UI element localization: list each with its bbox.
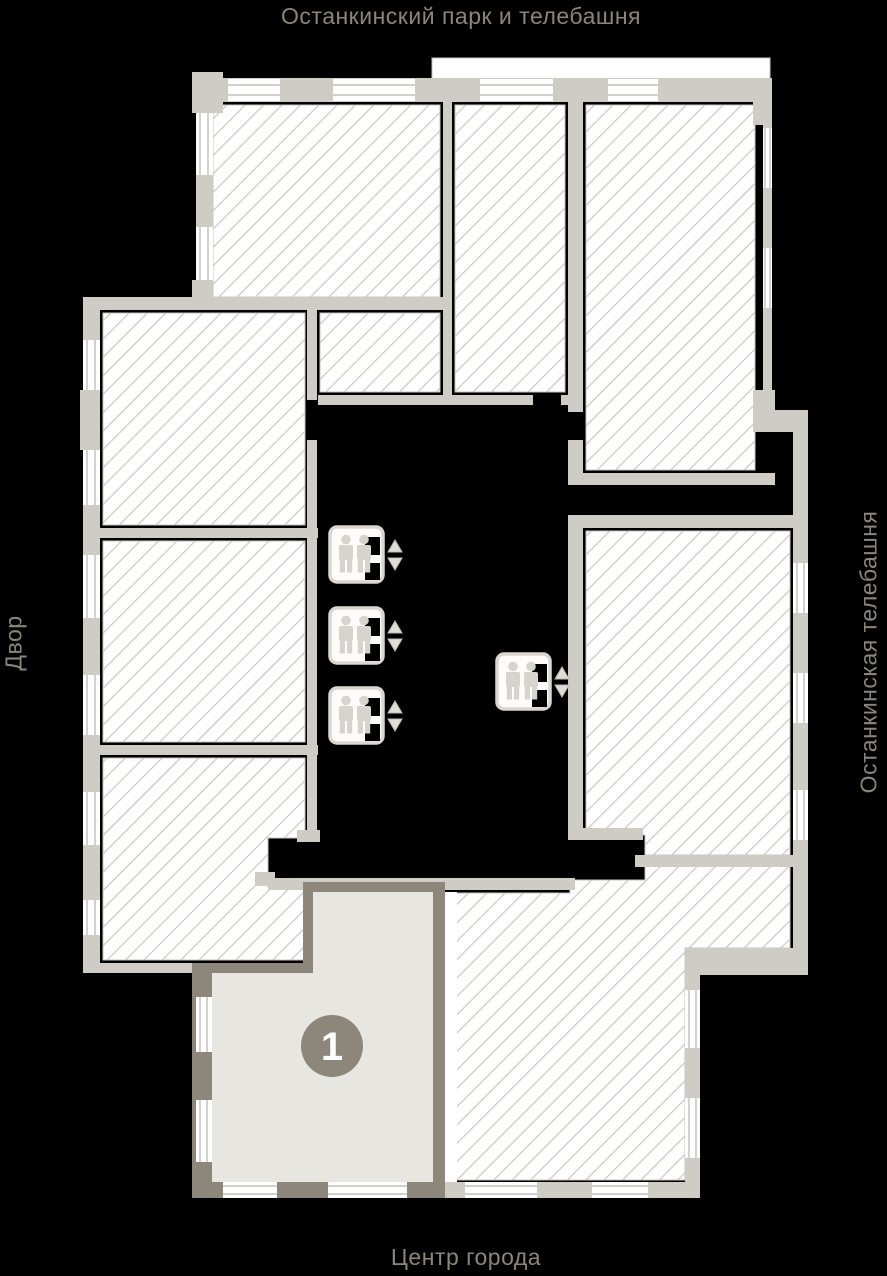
unit-top-right: [586, 105, 755, 470]
floor-plan: 1: [0, 0, 887, 1276]
apartment-1-number: 1: [321, 1025, 343, 1069]
elevators: [330, 527, 569, 743]
unit-right-middle: [586, 531, 790, 855]
floor-plan-page: Останкинский парк и телебашня Центр горо…: [0, 0, 887, 1276]
unit-gap: [445, 892, 457, 1182]
elevator-icon: [330, 608, 402, 663]
apartment-1-badge[interactable]: 1: [301, 1015, 363, 1077]
elevator-icon: [330, 688, 402, 743]
shaft-pocket: [775, 432, 792, 513]
elevator-icon: [330, 527, 402, 582]
elevator-icon: [497, 654, 569, 709]
balcony-strip: [432, 58, 770, 80]
unit-left-lower: [103, 758, 305, 960]
unit-bottom-right: [455, 866, 790, 1180]
unit-left-upper: [103, 313, 305, 525]
unit-top-middle: [455, 105, 565, 392]
unit-left-middle: [103, 541, 305, 742]
unit-top-left: [213, 105, 440, 297]
unit-small-room: [320, 313, 440, 392]
